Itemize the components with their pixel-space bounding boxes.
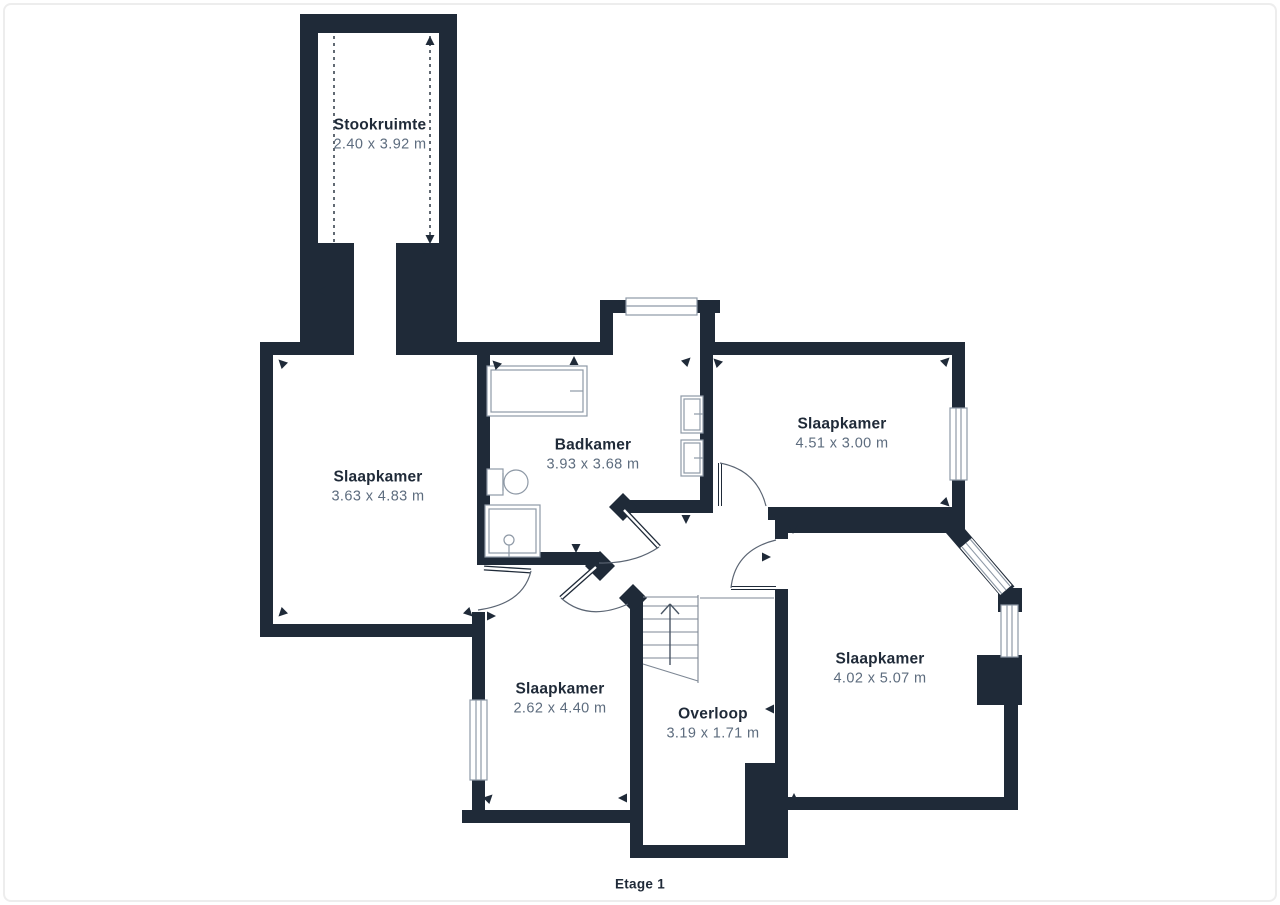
wall <box>439 14 457 243</box>
staircase <box>643 595 774 683</box>
floorplan-drawing <box>0 0 1280 905</box>
shower <box>485 505 540 557</box>
wall <box>300 14 457 33</box>
wall <box>396 342 613 355</box>
room-name: Slaapkamer <box>331 468 424 488</box>
room-label-slaapkamer-linksonder: Slaapkamer 2.62 x 4.40 m <box>513 680 606 719</box>
door-slaapkamer-rechtsonder <box>731 540 776 588</box>
floor-label: Etage 1 <box>615 877 665 892</box>
toilet <box>487 469 528 495</box>
wall <box>768 507 965 520</box>
room-dimensions: 4.02 x 5.07 m <box>833 670 926 689</box>
sink <box>681 396 703 433</box>
room-dimensions: 2.62 x 4.40 m <box>513 700 606 719</box>
wall <box>300 243 354 355</box>
room-name: Slaapkamer <box>513 680 606 700</box>
room-label-overloop: Overloop 3.19 x 1.71 m <box>666 705 759 744</box>
wall <box>977 655 1022 705</box>
room-label-stookruimte: Stookruimte 2.40 x 3.92 m <box>333 116 426 155</box>
wall <box>600 300 628 313</box>
wall <box>1004 705 1018 799</box>
door-slaapkamer-links <box>478 568 531 610</box>
wall <box>472 612 485 702</box>
stairs-direction-arrow <box>661 604 679 665</box>
wall <box>775 520 955 533</box>
wall <box>630 845 788 858</box>
window-badkamer-north <box>626 298 697 315</box>
window-slaapkamer-linksonder-west <box>470 700 487 780</box>
wall <box>260 342 354 355</box>
wall <box>700 342 965 355</box>
wall <box>952 355 965 410</box>
room-dimensions: 4.51 x 3.00 m <box>795 435 888 454</box>
door-slaapkamer-rechtsboven <box>720 463 766 506</box>
window-slaapkamer-rechtsonder-diagonal <box>962 539 1010 594</box>
room-name: Badkamer <box>546 436 639 456</box>
room-dimensions: 3.93 x 3.68 m <box>546 456 639 475</box>
bathtub <box>487 366 587 416</box>
room-name: Overloop <box>666 705 759 725</box>
wall <box>775 589 788 763</box>
wall <box>260 342 273 637</box>
room-label-slaapkamer-links: Slaapkamer 3.63 x 4.83 m <box>331 468 424 507</box>
room-dimensions: 2.40 x 3.92 m <box>333 136 426 155</box>
wall <box>775 533 788 539</box>
room-name: Stookruimte <box>333 116 426 136</box>
room-label-badkamer: Badkamer 3.93 x 3.68 m <box>546 436 639 475</box>
window-slaapkamer-rechtsonder-east <box>1001 605 1018 657</box>
wall <box>785 797 1018 810</box>
room-dimensions: 3.63 x 4.83 m <box>331 488 424 507</box>
door-badkamer <box>599 510 659 563</box>
room-label-slaapkamer-rechtsonder: Slaapkamer 4.02 x 5.07 m <box>833 650 926 689</box>
room-dimensions: 3.19 x 1.71 m <box>666 725 759 744</box>
room-label-slaapkamer-rechtsboven: Slaapkamer 4.51 x 3.00 m <box>795 415 888 454</box>
room-name: Slaapkamer <box>795 415 888 435</box>
window-slaapkamer-rechtsboven-east <box>950 408 967 480</box>
wall <box>396 243 457 355</box>
wall <box>300 14 318 243</box>
wall <box>260 624 473 637</box>
room-name: Slaapkamer <box>833 650 926 670</box>
sink <box>681 440 703 476</box>
wall <box>745 763 788 858</box>
wall <box>472 780 485 810</box>
wall <box>462 810 643 823</box>
wall <box>700 300 715 355</box>
